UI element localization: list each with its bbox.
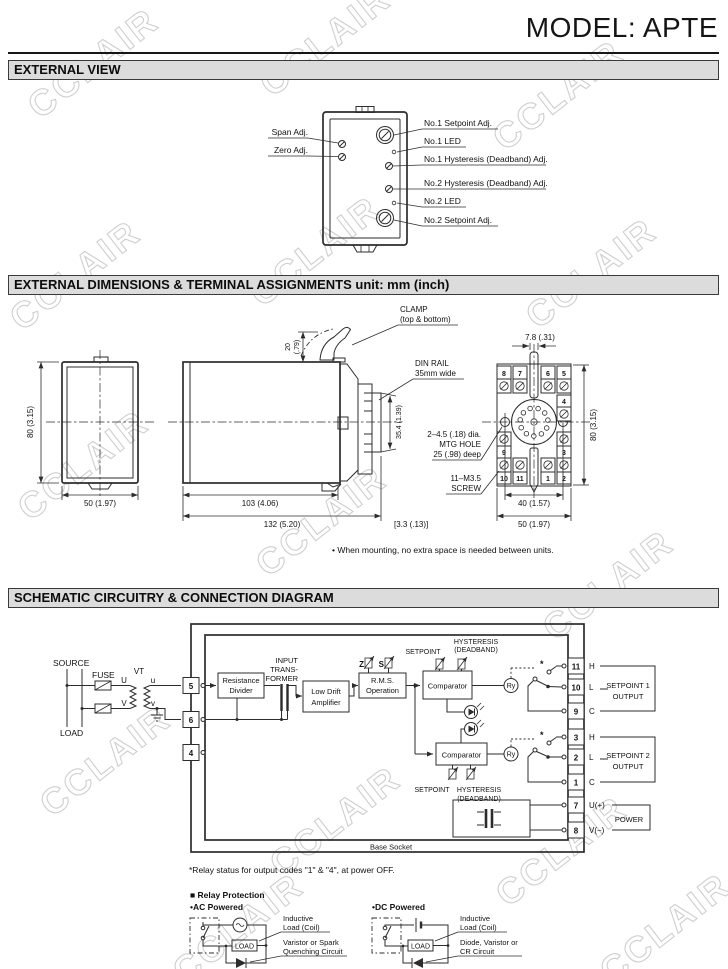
dim-clamp-gap-mm: 20 (285, 343, 292, 351)
span-trimmer (384, 656, 394, 673)
setpoint1-trimmer (435, 657, 445, 671)
terminal-number: 1 (546, 476, 550, 483)
input-transformer-label: INPUT (276, 656, 299, 665)
dc-battery-symbol (416, 918, 421, 932)
block-text: Comparator (442, 751, 482, 760)
relay-contact-2: * (511, 730, 566, 784)
terminal-number: 6 (546, 371, 550, 378)
ac-varistor-label2: Quenching Circuit (283, 947, 344, 956)
setpoint1-output-bracket: SETPOINT 1 OUTPUT (600, 666, 655, 711)
block-text: Comparator (428, 682, 468, 691)
external-view-diagram: Span Adj. Zero Adj. No.1 Setpoint Adj. N… (0, 90, 728, 268)
block-text: Amplifier (311, 698, 341, 707)
dim-hole-span: 40 (1.57) (518, 499, 550, 508)
dim-front-height: 80 (3.15) (26, 406, 35, 438)
label-mtg-hole-2: MTG HOLE (439, 440, 481, 449)
setpoint1-knob (377, 127, 394, 144)
output-label: SETPOINT 1 (606, 681, 650, 690)
left-terminals: 5 6 4 (183, 678, 205, 761)
front-view: 80 (3.15) 50 (1.97) (26, 350, 154, 508)
load-box-label: LOAD (411, 944, 430, 951)
input-transformer-label: TRANS- (270, 665, 298, 674)
datasheet-page: CCLAIR CCLAIR CCLAIR CCLAIR CCLAIR CCLAI… (0, 0, 728, 969)
setpoint2-trimmer (448, 765, 458, 780)
right-terminals: 11 10 9 3 2 1 7 8 H L C H L C U(+) V(−) … (568, 658, 655, 838)
dim-rail-height: 35.4 (1.39) (396, 405, 403, 439)
input-source-circuit: SOURCE LOAD FUSE U VT u V v (53, 658, 181, 738)
dc-inductive-label2: Load (Coil) (460, 923, 497, 932)
title-divider (8, 52, 719, 54)
schematic-diagram: Base Socket SOURCE LOAD FUSE U VT u V v (0, 615, 728, 969)
relay-status-footnote: *Relay status for output codes "1" & "4"… (189, 865, 395, 875)
terminal-number: 5 (189, 682, 194, 691)
label-mtg-hole-3: 25 (.98) deep (433, 450, 481, 459)
ac-powered-heading: •AC Powered (190, 902, 243, 912)
ac-source-symbol (233, 918, 247, 932)
relay-coil-label: Ry (507, 683, 516, 690)
hysteresis-label: HYSTERESIS (457, 787, 502, 794)
label-no2-hysteresis: No.2 Hysteresis (Deadband) Adj. (424, 178, 548, 188)
asterisk-marker: * (540, 659, 544, 669)
device-front-panel (323, 107, 407, 253)
terminal-number: 7 (574, 802, 579, 811)
power-label: POWER (615, 815, 644, 824)
relay-protection: ■ Relay Protection •AC Powered •DC Power… (190, 890, 522, 968)
power-bracket: POWER (612, 805, 650, 830)
source-label: SOURCE (53, 658, 90, 668)
vt-u-primary: U (121, 676, 127, 685)
section-header-schematic: SCHEMATIC CIRCUITRY & CONNECTION DIAGRAM (8, 588, 719, 608)
label-no1-setpoint: No.1 Setpoint Adj. (424, 118, 492, 128)
pin-label: V(−) (589, 826, 605, 835)
pin-label: H (589, 662, 595, 671)
terminal-number: 8 (574, 827, 579, 836)
relay-coil-label: Ry (507, 752, 516, 759)
dc-suppressor-diode (412, 958, 423, 968)
block-text: R.M.S. (371, 676, 394, 685)
vt-primary-coil (130, 686, 136, 709)
dc-powered-heading: •DC Powered (372, 902, 425, 912)
dim-rear-width: 50 (1.97) (518, 520, 550, 529)
label-din-rail2: 35mm wide (415, 369, 456, 378)
pin-label: C (589, 778, 595, 787)
led1-symbol (465, 703, 485, 719)
span-adj-screw (339, 141, 346, 148)
dim-offset: [3.3 (.13)] (394, 520, 428, 529)
label-screw-2: SCREW (451, 484, 481, 493)
dim-clamp-gap-inch: (.79) (294, 340, 301, 354)
terminal-number: 10 (500, 476, 508, 483)
hysteresis-label: HYSTERESIS (454, 639, 499, 646)
terminal-number: 10 (572, 684, 581, 693)
pin-label: U(+) (589, 801, 605, 810)
label-no1-led: No.1 LED (424, 136, 461, 146)
hysteresis2-trimmer (466, 765, 476, 780)
external-view-labels: Span Adj. Zero Adj. No.1 Setpoint Adj. N… (268, 118, 548, 226)
output-label: SETPOINT 2 (606, 751, 650, 760)
hysteresis1-trimmer (457, 657, 467, 671)
vt-v-primary: V (121, 699, 127, 708)
output-label: OUTPUT (613, 762, 644, 771)
pin-label: H (589, 733, 595, 742)
side-view: 20 (.79) 35.4 (1.39) CLAMP (top & bottom… (168, 305, 464, 529)
setpoint-label: SETPOINT (405, 649, 441, 656)
led2-dot (392, 201, 396, 205)
label-clamp: CLAMP (400, 305, 428, 314)
led2-symbol (461, 720, 484, 743)
load-label: LOAD (60, 728, 83, 738)
block-text: Divider (229, 686, 253, 695)
dc-inductive-label: Inductive (460, 914, 490, 923)
terminal-number: 9 (502, 450, 506, 457)
label-mtg-hole-1: 2–4.5 (.18) dia. (427, 430, 481, 439)
led1-dot (392, 150, 396, 154)
zero-trimmer-label: Z (359, 660, 364, 669)
ac-varistor-label: Varistor or Spark (283, 938, 339, 947)
signal-chain: Resistance Divider INPUT TRANS- FORMER L… (205, 656, 433, 754)
deadband-label: (DEADBAND) (454, 647, 498, 654)
page-title: MODEL: APTE (526, 12, 718, 44)
load-box-label: LOAD (235, 944, 254, 951)
dc-protection-circuit: LOAD (372, 918, 449, 968)
mounting-note: • When mounting, no extra space is neede… (332, 545, 554, 555)
terminal-number: 7 (518, 371, 522, 378)
vt-secondary-coil (144, 686, 150, 709)
block-text: Operation (366, 686, 399, 695)
label-no2-setpoint: No.2 Setpoint Adj. (424, 215, 492, 225)
terminal-number: 11 (516, 476, 524, 483)
rear-view: 8 7 6 5 4 9 3 10 11 1 (427, 333, 598, 529)
base-socket-label: Base Socket (370, 843, 413, 852)
section-header-dimensions: EXTERNAL DIMENSIONS & TERMINAL ASSIGNMEN… (8, 275, 719, 295)
terminal-number: 4 (189, 749, 194, 758)
dimensions-diagram: 80 (3.15) 50 (1.97) 20 (.79) (0, 300, 728, 562)
pin-label: C (589, 707, 595, 716)
label-screw-1: 11–M3.5 (450, 474, 481, 483)
comparator2-group: Comparator Ry SETPOINT HYSTERESIS (DEADB… (414, 720, 566, 803)
label-no1-hysteresis: No.1 Hysteresis (Deadband) Adj. (424, 154, 548, 164)
vt-v-secondary: v (151, 699, 155, 708)
setpoint2-knob (377, 210, 394, 227)
label-din-rail: DIN RAIL (415, 359, 449, 368)
block-text: Resistance (222, 676, 259, 685)
setpoint-label: SETPOINT (414, 787, 450, 794)
ac-inductive-label2: Load (Coil) (283, 923, 320, 932)
pin-label: L (589, 683, 594, 692)
zero-trimmer (364, 656, 374, 673)
terminal-number: 11 (572, 663, 581, 672)
label-no2-led: No.2 LED (424, 196, 461, 206)
setpoint2-output-bracket: SETPOINT 2 OUTPUT (600, 737, 655, 782)
label-span-adj: Span Adj. (272, 127, 308, 137)
terminal-number: 4 (562, 399, 566, 406)
ground-symbol (151, 709, 163, 722)
dim-front-width: 50 (1.97) (84, 499, 116, 508)
terminal-number: 8 (502, 371, 506, 378)
label-clamp2: (top & bottom) (400, 315, 451, 324)
section-header-external-view: EXTERNAL VIEW (8, 60, 719, 80)
relay-contact-1: * (511, 659, 566, 713)
terminal-number: 3 (574, 734, 579, 743)
relay-protection-heading: ■ Relay Protection (190, 890, 265, 900)
zero-adj-screw (339, 154, 346, 161)
span-trimmer-label: S (379, 660, 385, 669)
terminal-number: 2 (574, 754, 579, 763)
asterisk-marker: * (540, 730, 544, 740)
hysteresis1-screw (386, 163, 393, 170)
terminal-number: 5 (562, 371, 566, 378)
hysteresis2-screw (386, 186, 393, 193)
fuse-label: FUSE (92, 670, 115, 680)
dim-body-depth: 103 (4.06) (242, 499, 279, 508)
input-transformer-symbol (264, 684, 300, 721)
terminal-number: 1 (574, 779, 579, 788)
vt-label: VT (134, 667, 144, 676)
terminal-number: 9 (574, 708, 579, 717)
output-label: OUTPUT (613, 692, 644, 701)
power-supply (453, 800, 566, 837)
low-drift-amplifier-block (303, 681, 349, 712)
terminal-number: 6 (189, 716, 194, 725)
ac-suppressor-diode (236, 958, 246, 968)
label-zero-adj: Zero Adj. (274, 145, 308, 155)
dc-diode-label2: CR Circuit (460, 947, 495, 956)
input-transformer-label: FORMER (266, 674, 299, 683)
din-clamp-top (320, 327, 351, 360)
ac-inductive-label: Inductive (283, 914, 313, 923)
vt-u-secondary: u (151, 676, 155, 685)
dim-rear-height: 80 (3.15) (589, 409, 598, 441)
dim-total-depth: 132 (5.20) (264, 520, 301, 529)
pin-label: L (589, 753, 594, 762)
dim-pitch: 7.8 (.31) (525, 333, 555, 342)
dc-diode-label: Diode, Varistor or (460, 938, 518, 947)
comparator1-group: SETPOINT HYSTERESIS (DEADBAND) Comparato… (405, 639, 566, 719)
block-text: Low Drift (311, 687, 342, 696)
